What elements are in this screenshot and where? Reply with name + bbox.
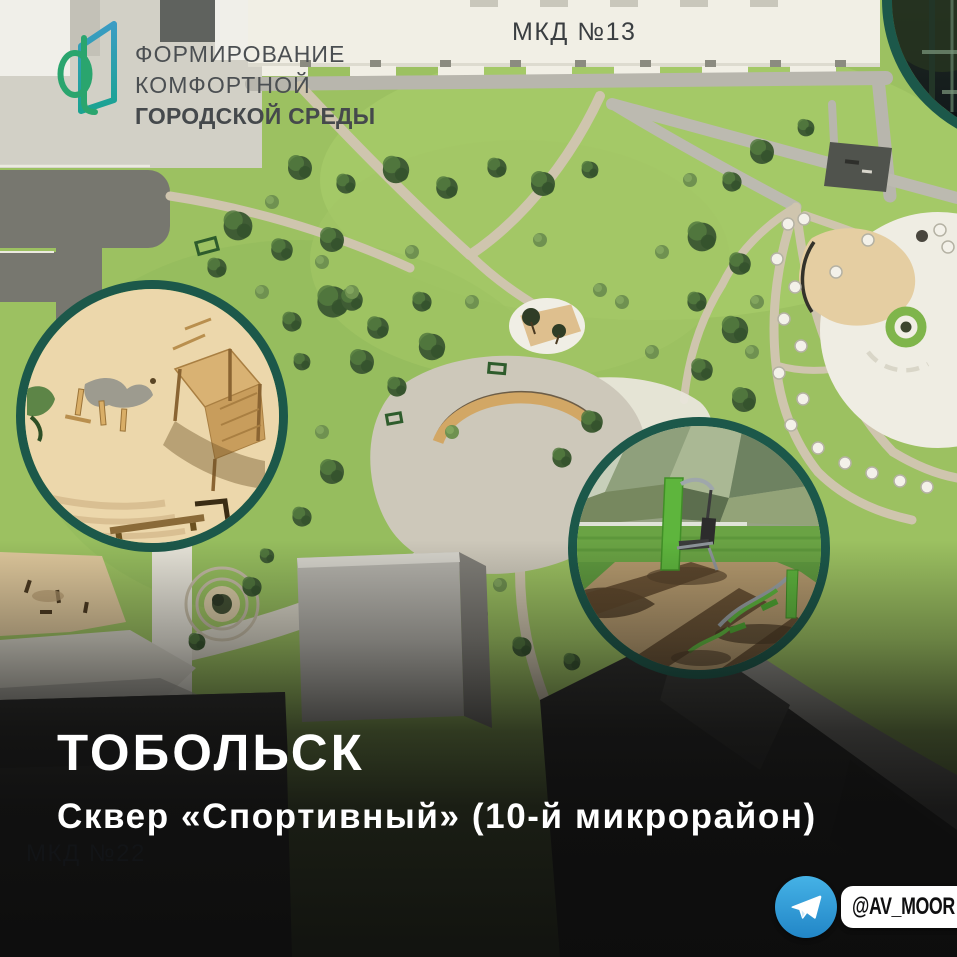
telegram-icon [775, 876, 837, 938]
caption-block: ТОБОЛЬСК Сквер «Спортивный» (10-й микрор… [57, 725, 817, 837]
sports-pad [824, 142, 892, 192]
building-label-mkd13: МКД №13 [512, 18, 636, 47]
telegram-handle: @AV_MOOR [852, 893, 955, 921]
telegram-handle-pill: @AV_MOOR [841, 886, 957, 928]
fkgs-logo: ФОРМИРОВАНИЕ КОМФОРТНОЙ ГОРОДСКОЙ СРЕДЫ [52, 12, 375, 132]
playground-inset [16, 280, 288, 552]
building-label-mkd22: МКД №22 [26, 840, 146, 868]
logo-line-1: ФОРМИРОВАНИЕ [135, 39, 375, 70]
city-title: ТОБОЛЬСК [57, 725, 817, 781]
telegram-plane-icon [788, 889, 824, 925]
outdoor-gym-inset [568, 417, 830, 679]
social-post: МКД №13 МКД №22 [0, 0, 957, 957]
logo-line-2: КОМФОРТНОЙ [135, 70, 375, 101]
outdoor-gym-closeup-image [577, 426, 821, 670]
logo-line-3: ГОРОДСКОЙ СРЕДЫ [135, 101, 375, 132]
project-subtitle: Сквер «Спортивный» (10-й микрорайон) [57, 797, 817, 837]
telegram-badge: @AV_MOOR [775, 876, 957, 938]
playground-closeup-image [25, 289, 279, 543]
fkgs-logo-text: ФОРМИРОВАНИЕ КОМФОРТНОЙ ГОРОДСКОЙ СРЕДЫ [135, 12, 375, 132]
fkgs-logo-icon [52, 12, 122, 124]
